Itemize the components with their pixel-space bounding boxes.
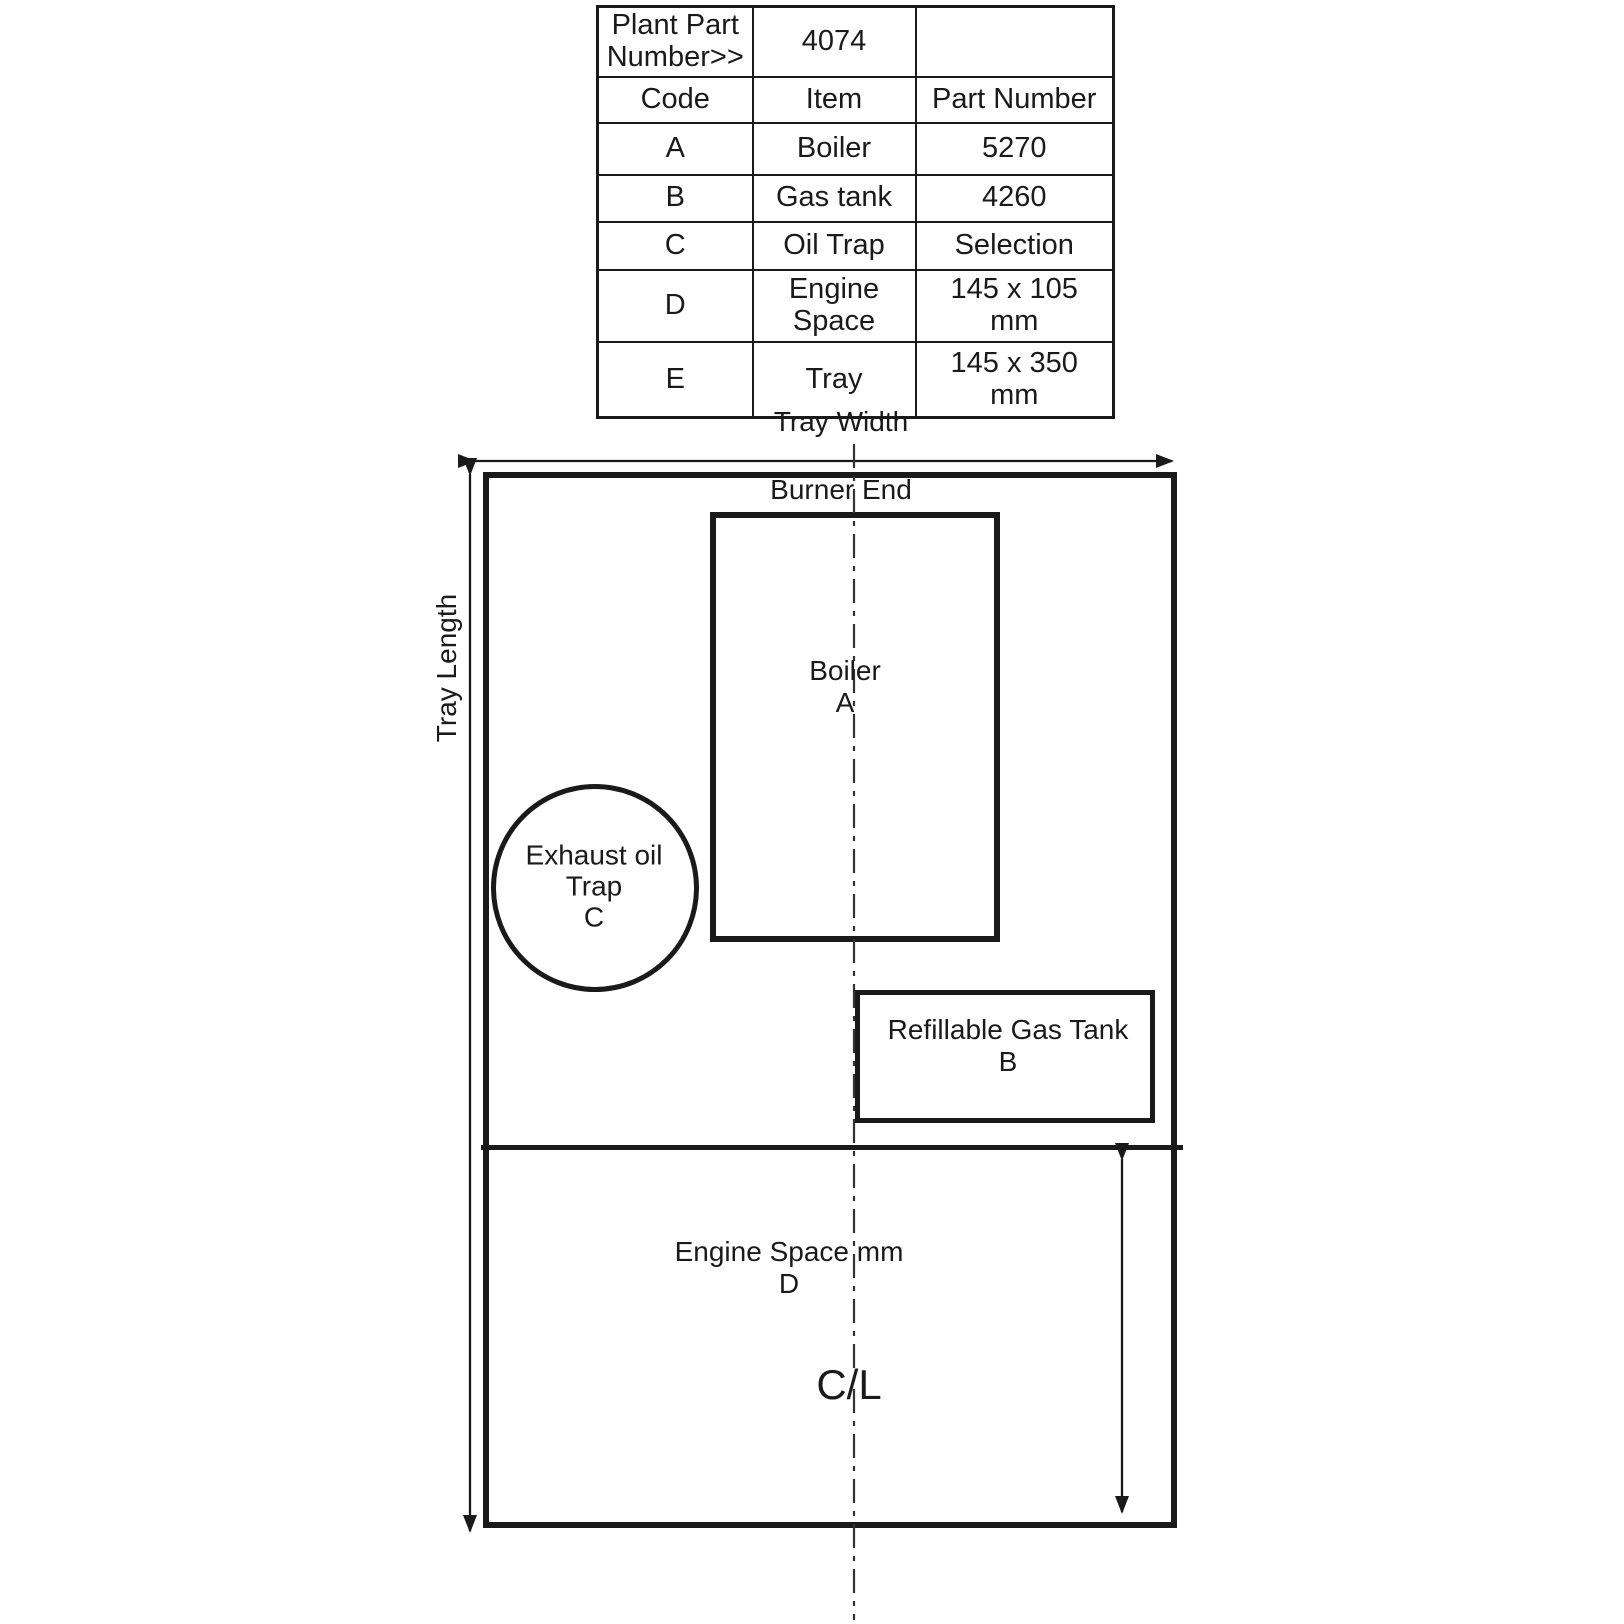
row-item: Engine Space <box>769 274 899 338</box>
table-row: C Oil Trap Selection <box>598 222 1114 270</box>
row-part: 145 x 105 mm <box>937 274 1092 338</box>
tray-width-label: Tray Width <box>774 406 908 438</box>
row-code: B <box>666 182 685 214</box>
gas-tank-label: Refillable Gas Tank B <box>888 1014 1129 1078</box>
plant-part-value-cell: 4074 <box>753 7 916 77</box>
table-row: B Gas tank 4260 <box>598 175 1114 222</box>
plant-part-value: 4074 <box>802 26 867 58</box>
col-header-code: Code <box>598 77 753 123</box>
row-part: Selection <box>955 230 1074 262</box>
engine-space-label: Engine Space mm D <box>675 1236 904 1300</box>
row-code: D <box>665 290 686 322</box>
row-item: Gas tank <box>776 182 892 214</box>
plant-part-label-cell: Plant Part Number>> <box>598 7 753 77</box>
col-header-part-number: Part Number <box>916 77 1114 123</box>
row-item: Oil Trap <box>783 230 885 262</box>
oil-trap-label: Exhaust oil Trap C <box>526 840 663 933</box>
row-code: E <box>666 364 685 396</box>
boiler-box <box>710 512 1000 942</box>
row-code: A <box>666 133 685 165</box>
row-part: 5270 <box>982 133 1047 165</box>
row-part: 145 x 350 mm <box>937 348 1092 412</box>
plant-part-extra-cell <box>916 7 1114 77</box>
row-item: Tray <box>806 364 863 396</box>
layout-drawing-page: Plant Part Number>> 4074 Code Item Part … <box>0 0 1624 1624</box>
row-part: 4260 <box>982 182 1047 214</box>
col-header-item: Item <box>753 77 916 123</box>
row-item: Boiler <box>797 133 871 165</box>
parts-table: Plant Part Number>> 4074 Code Item Part … <box>596 5 1115 419</box>
burner-end-label: Burner End <box>770 474 912 506</box>
boiler-label: Boiler A <box>809 655 881 719</box>
centerline-label: C/L <box>816 1369 881 1401</box>
row-code: C <box>665 230 686 262</box>
engine-space-divider-line <box>481 1145 1183 1150</box>
table-header-row: Code Item Part Number <box>598 77 1114 123</box>
table-row: D Engine Space 145 x 105 mm <box>598 270 1114 342</box>
table-row: A Boiler 5270 <box>598 123 1114 175</box>
plant-part-label: Plant Part Number>> <box>603 10 748 74</box>
tray-length-label: Tray Length <box>431 594 463 742</box>
table-row-plant-part: Plant Part Number>> 4074 <box>598 7 1114 77</box>
